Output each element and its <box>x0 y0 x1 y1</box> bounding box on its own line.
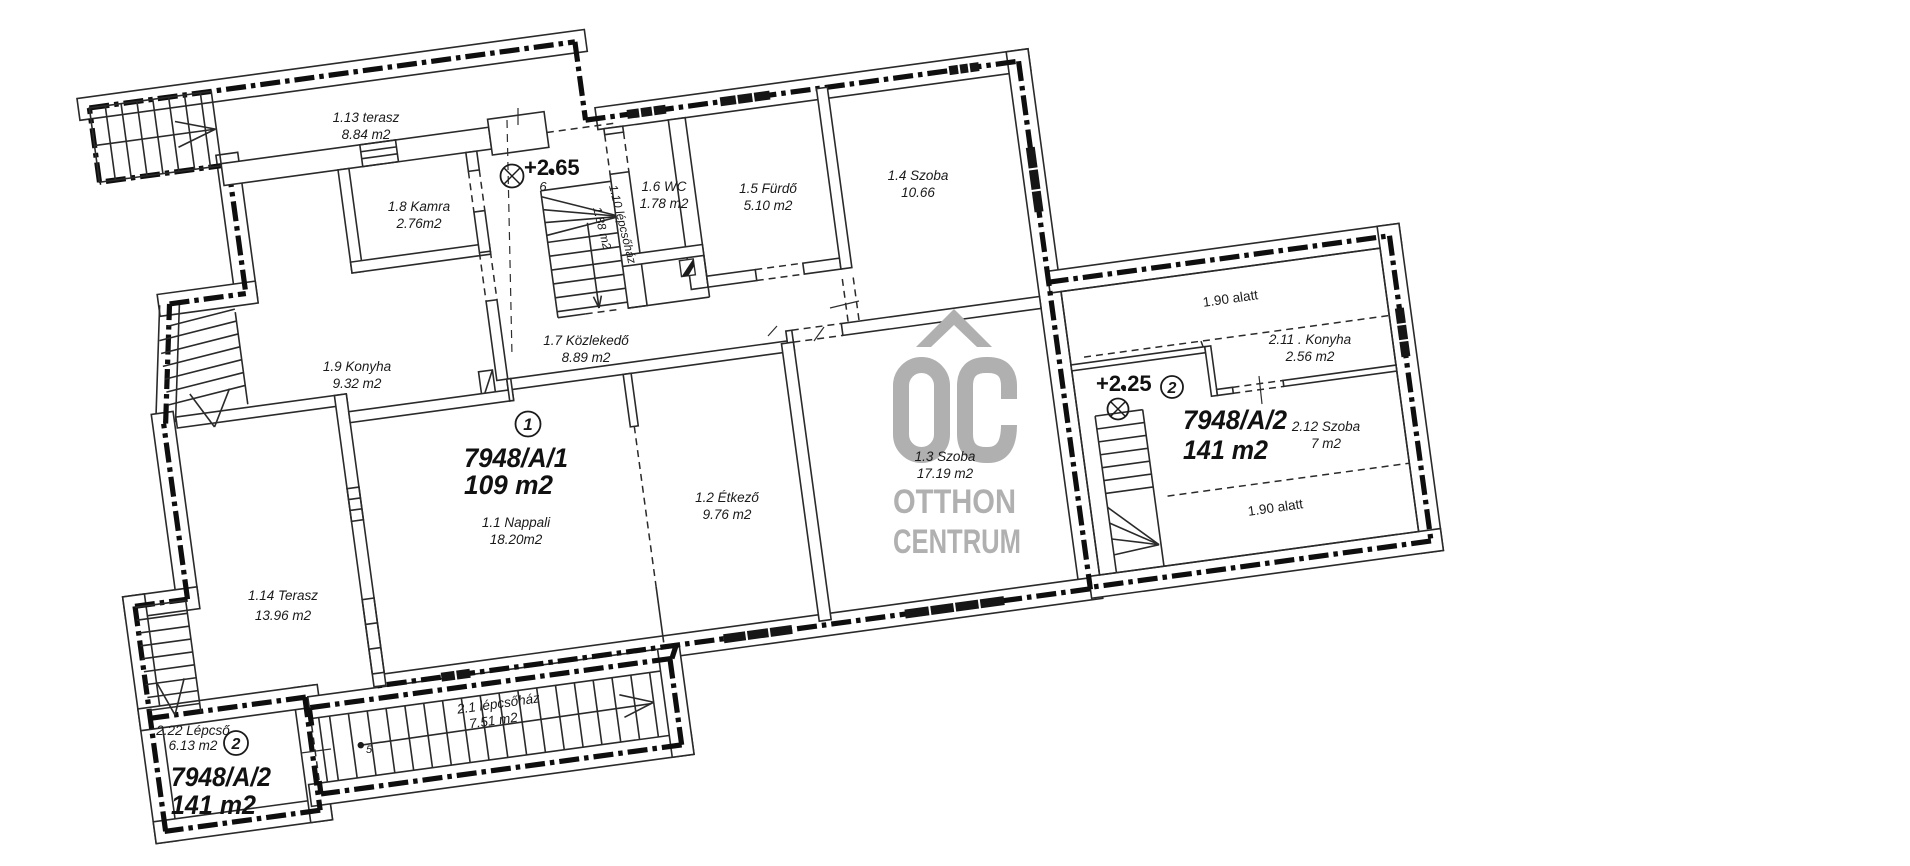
svg-text:109 m2: 109 m2 <box>464 470 553 500</box>
svg-text:9.76 m2: 9.76 m2 <box>703 507 752 522</box>
svg-text:1.4 Szoba: 1.4 Szoba <box>888 168 949 183</box>
svg-text:1.14 Terasz: 1.14 Terasz <box>248 588 318 603</box>
svg-text:18.20m2: 18.20m2 <box>490 532 543 547</box>
svg-text:10.66: 10.66 <box>901 185 935 200</box>
svg-text:141 m2: 141 m2 <box>171 790 256 820</box>
svg-text:1.8 Kamra: 1.8 Kamra <box>388 199 451 214</box>
svg-text:7 m2: 7 m2 <box>1311 436 1342 451</box>
svg-text:1.7 Közlekedő: 1.7 Közlekedő <box>543 333 629 348</box>
svg-text:1: 1 <box>523 415 532 434</box>
svg-text:+2.25: +2.25 <box>1096 371 1152 396</box>
svg-text:6.13 m2: 6.13 m2 <box>169 738 218 753</box>
svg-text:1.78 m2: 1.78 m2 <box>640 196 689 211</box>
svg-text:8.84 m2: 8.84 m2 <box>342 127 391 142</box>
svg-text:1.13 terasz: 1.13 terasz <box>333 110 400 125</box>
svg-text:7948/A/2: 7948/A/2 <box>171 762 271 792</box>
svg-text:141 m2: 141 m2 <box>1183 435 1268 465</box>
svg-text:5.10 m2: 5.10 m2 <box>744 198 793 213</box>
svg-text:CENTRUM: CENTRUM <box>893 523 1021 561</box>
svg-text:7948/A/1: 7948/A/1 <box>464 443 568 473</box>
svg-text:1.1 Nappali: 1.1 Nappali <box>482 515 551 530</box>
svg-text:8.89 m2: 8.89 m2 <box>562 350 611 365</box>
svg-text:6: 6 <box>539 179 547 194</box>
svg-text:17.19 m2: 17.19 m2 <box>917 466 974 481</box>
svg-text:7948/A/2: 7948/A/2 <box>1183 405 1287 435</box>
svg-text:2: 2 <box>231 736 241 753</box>
svg-text:1.9 Konyha: 1.9 Konyha <box>323 359 392 374</box>
svg-text:1.6 WC: 1.6 WC <box>641 179 686 194</box>
svg-text:2.22 Lépcső: 2.22 Lépcső <box>155 723 230 738</box>
svg-text:OTTHON: OTTHON <box>893 483 1016 521</box>
svg-text:+2.65: +2.65 <box>524 155 580 180</box>
svg-text:2.76m2: 2.76m2 <box>395 216 442 231</box>
svg-text:1.2 Étkező: 1.2 Étkező <box>695 490 759 505</box>
svg-text:2: 2 <box>1167 380 1177 397</box>
svg-text:2.11 . Konyha: 2.11 . Konyha <box>1268 332 1352 347</box>
svg-text:1.3 Szoba: 1.3 Szoba <box>915 449 976 464</box>
svg-text:9.32 m2: 9.32 m2 <box>333 376 382 391</box>
svg-text:13.96 m2: 13.96 m2 <box>255 608 312 623</box>
svg-text:1.5 Fürdő: 1.5 Fürdő <box>739 181 797 196</box>
svg-text:2.12 Szoba: 2.12 Szoba <box>1291 419 1361 434</box>
svg-text:2.56 m2: 2.56 m2 <box>1285 349 1335 364</box>
svg-text:5: 5 <box>366 744 373 756</box>
